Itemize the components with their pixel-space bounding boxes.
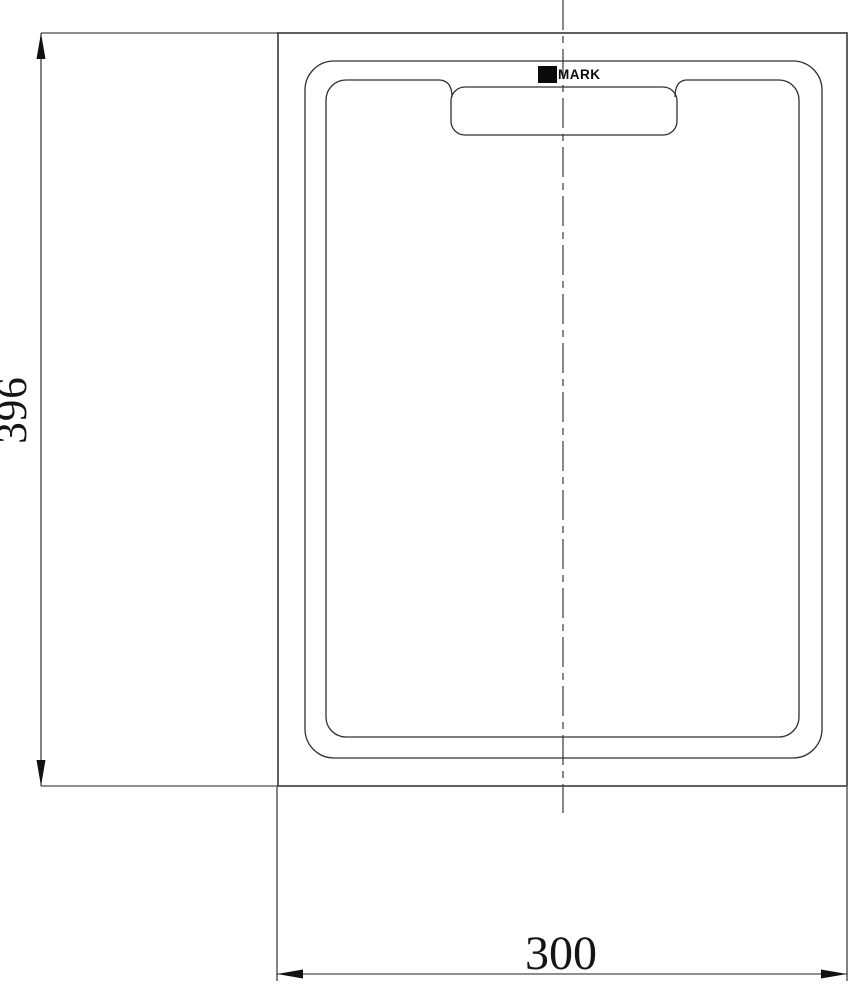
arrow-up-icon (37, 33, 46, 59)
cutting-board-drawing: 396 300 MARK (0, 0, 853, 985)
drawing-canvas: 396 300 MARK (0, 0, 853, 985)
arrow-down-icon (37, 760, 46, 786)
rim-fillet-left (440, 80, 452, 97)
arrow-left-icon (277, 970, 303, 979)
width-dimension-label: 300 (525, 927, 597, 980)
arrow-right-icon (821, 970, 847, 979)
brand-logo-square-icon (538, 66, 557, 83)
rim-fillet-right (675, 80, 686, 97)
height-dimension-label: 396 (0, 376, 36, 444)
brand-logo: MARK (538, 66, 601, 83)
height-dimension: 396 (0, 33, 278, 786)
brand-logo-text: MARK (558, 67, 601, 82)
width-dimension: 300 (277, 787, 847, 981)
handle-cutout (451, 87, 677, 135)
